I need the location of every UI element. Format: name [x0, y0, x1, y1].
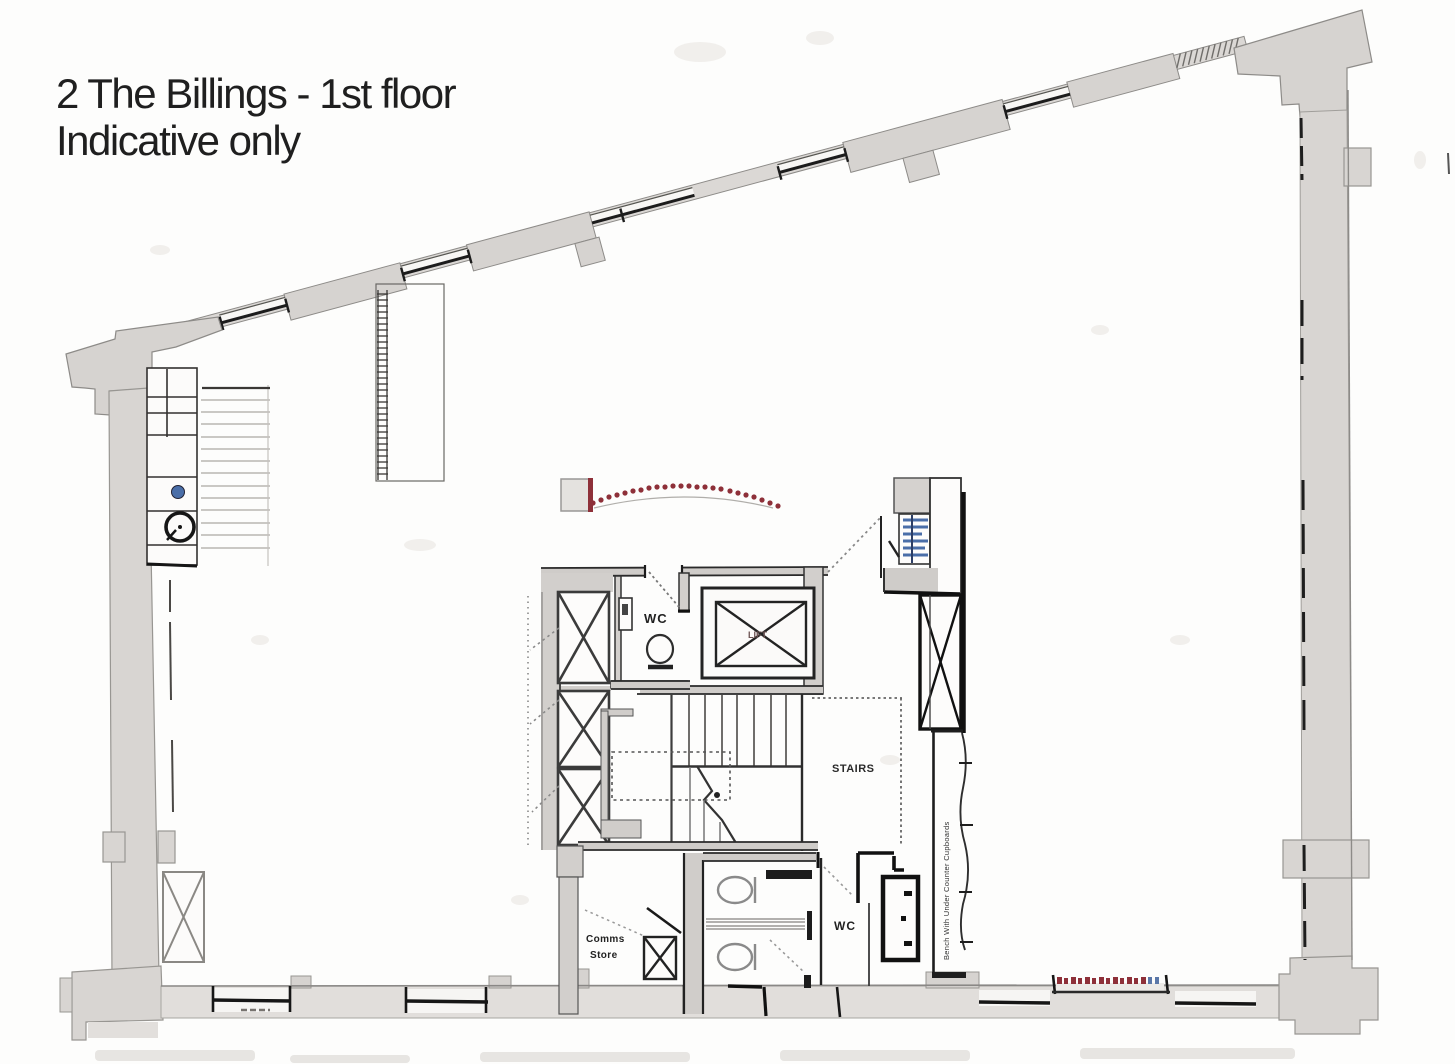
svg-text:LIFT: LIFT	[748, 630, 767, 640]
svg-text:Comms: Comms	[586, 934, 625, 945]
svg-text:Bench With Under Counter Cupbo: Bench With Under Counter Cupboards	[942, 821, 951, 960]
svg-text:WC: WC	[834, 919, 856, 933]
svg-text:STAIRS: STAIRS	[832, 763, 875, 775]
svg-text:Indicative only: Indicative only	[56, 117, 301, 164]
svg-text:Store: Store	[590, 950, 618, 961]
svg-text:2 The Billings - 1st floor: 2 The Billings - 1st floor	[56, 70, 457, 117]
svg-text:WC: WC	[644, 611, 668, 626]
